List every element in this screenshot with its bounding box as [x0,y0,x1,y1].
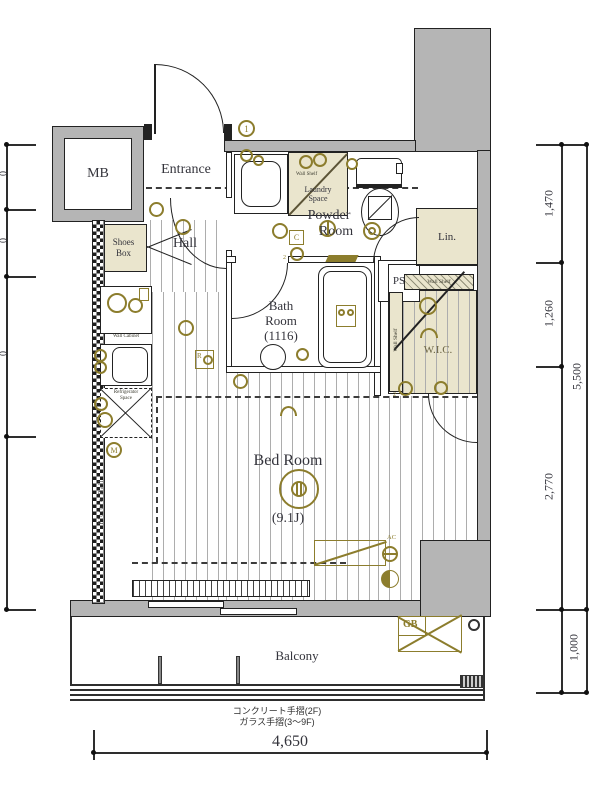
radiator-strip [132,580,310,597]
balcony-hook-circle [468,619,480,631]
partition-powder-left-top [226,152,232,198]
stove-panel-icon [139,288,149,301]
balcony-rail-line [70,699,485,701]
dim-dot [559,690,564,695]
mb-room: MB [64,138,132,210]
bath-stool-circle [260,344,286,370]
dim-dot [4,274,9,279]
toilet-button [396,163,403,174]
powder-label-1: Powder [308,208,351,224]
entrance-door-swing [155,64,224,133]
outlet-count-label: 2 [393,392,396,398]
dim-tick [6,609,36,611]
faucet-icon [94,361,107,374]
sliding-window-panel [148,601,224,608]
balcony-rail-line [70,684,485,686]
wic-wall-shelf-top-label: Wall Shelf [427,279,450,285]
shoes-label-1: Shoes [113,237,135,248]
outlet-icon [253,155,264,166]
wic-label: W.I.C. [410,344,466,356]
bath-label-1: Bath [269,298,294,313]
refrigerator-label-2: Space [120,396,132,402]
outlet-icon [175,219,191,235]
balcony-post [236,656,240,684]
dim-dot [484,750,489,755]
outlet-icon [178,320,194,336]
dim-left-fragment: 0 [0,144,10,204]
wic-wall-shelf-top: Wall Shelf [404,274,474,290]
bathtub-drain-circle [338,309,345,316]
ac-label: AC [387,534,396,541]
dim-dot [559,142,564,147]
dim-dot [559,260,564,265]
washbasin-bowl [241,161,281,207]
dim-right-total-5500: 5,500 [570,347,585,407]
dim-dot [91,750,96,755]
outlet-icon [149,202,164,217]
handrail-note: コンクリート手摺(2F) ガラス手摺(3〜9F) [157,706,397,728]
dim-left-fragment: 0 [0,211,10,271]
bedroom-label: Bed Room [240,452,336,470]
wall-top-right-block [414,28,491,152]
laundry-space-label: Laundry Space [288,183,348,205]
remote-box-label: R [197,352,202,360]
dim-dot [559,607,564,612]
dim-tick [6,144,36,146]
balcony-rail-line [70,694,485,696]
dim-line-bottom [93,752,487,754]
floor-plan: MB PS Lin. Wall Shelf Wall Shelf Shoes B… [0,0,600,800]
door-number-badge: 1 [238,120,255,137]
outlet-icon [434,381,448,395]
bathtub-drain-icon [336,305,356,327]
balcony-rail-line [70,689,485,691]
hall-label: Hall [160,236,210,252]
powder-room-label: Powder Room [296,208,362,240]
bathtub-drain-circle [347,309,354,316]
wic-wall-shelf-side-label: Wall Shelf [393,310,399,370]
shoes-box-label: Shoes Box [100,232,147,264]
entrance-door-jamb-left [144,124,152,140]
wall-powder-top [224,140,416,152]
dim-tick [6,276,36,278]
dim-bottom-4650: 4,650 [240,733,340,751]
lin-label: Lin. [438,231,456,243]
toilet-tank-lid-line [356,184,402,188]
dim-right-1260: 1,260 [542,284,557,344]
outlet-filled-icon [381,570,399,588]
handrail-note-1: コンクリート手摺(2F) [233,706,322,717]
bedroom-dashed-left [156,397,158,563]
outlet-icon [290,247,304,261]
dim-tick [6,209,36,211]
handrail-note-2: ガラス手摺(3〜9F) [239,717,314,728]
outlet-line [384,553,396,555]
dim-dot [584,690,589,695]
laundry-wall-shelf-label: Wall Shelf [296,172,317,177]
meter-icon: M [106,442,122,458]
dim-right-1470: 1,470 [542,174,557,234]
dim-dot [4,607,9,612]
meter-label: M [110,446,117,455]
dim-tick [6,436,36,438]
laundry-label-2: Space [308,194,327,203]
balcony-post [158,656,162,684]
balcony-drain-grate [460,675,484,688]
bedroom-size-label: (9.1J) [252,511,324,527]
dim-balcony-1000: 1,000 [567,618,582,678]
remote-box-circle [203,355,213,365]
bath-outlet-icon [296,348,309,361]
laundry-label-1: Laundry [304,185,331,194]
outlet-icon [233,374,248,389]
gb-label: GB [403,619,417,630]
dim-left-fragment: 0 [0,324,10,384]
powder-label-2: Room [319,224,353,240]
refrigerator-label: Refrigerator Space [100,390,152,402]
bedroom-ceiling-light-line [296,483,298,495]
outlet-icon [299,155,313,169]
outlet-icon [398,381,413,396]
outlet-icon [94,397,108,411]
outlet-icon [240,149,253,162]
picture-rail-label: Picture Rail [97,471,105,533]
mb-label: MB [87,166,109,182]
outlet-icon-inner [368,227,376,235]
shoes-label-2: Box [116,248,131,259]
outlet-count-label: 2 [283,255,286,261]
outlet-icon [97,412,113,428]
burner-icon [107,293,127,313]
dim-end-tick [93,730,95,760]
balcony-left-edge [70,615,72,685]
corridor-floor [152,292,226,600]
dim-dot [4,434,9,439]
dim-dot [584,607,589,612]
partition-powder-bath-left [226,256,236,263]
entrance-label: Entrance [150,162,222,178]
dim-right-2770: 2,770 [542,457,557,517]
balcony-label: Balcony [262,648,332,664]
dim-end-tick [486,730,488,760]
threshold-wedge [325,255,358,262]
kitchen-sink-basin [112,347,148,383]
bath-label-3: (1116) [264,328,298,343]
bedroom-ceiling-light-line [300,483,302,495]
bedroom-ceiling-light-inner [291,481,307,497]
wall-cabinet-label: Wall Cabinet [100,334,152,339]
linen-closet: Lin. [416,208,478,266]
outlet-icon [272,223,288,239]
outlet-icon [313,153,327,167]
door-number-label: 1 [244,124,249,134]
dim-dot [584,142,589,147]
bath-room-label: Bath Room (1116) [248,298,314,343]
outlet-icon [346,158,358,170]
wic-light-icon [419,297,437,315]
entrance-door-jamb-right [224,124,232,140]
sliding-window-panel [220,608,297,615]
dim-dot [559,364,564,369]
bath-label-2: Room [265,313,297,328]
wall-bottom-right-notch [420,540,491,617]
